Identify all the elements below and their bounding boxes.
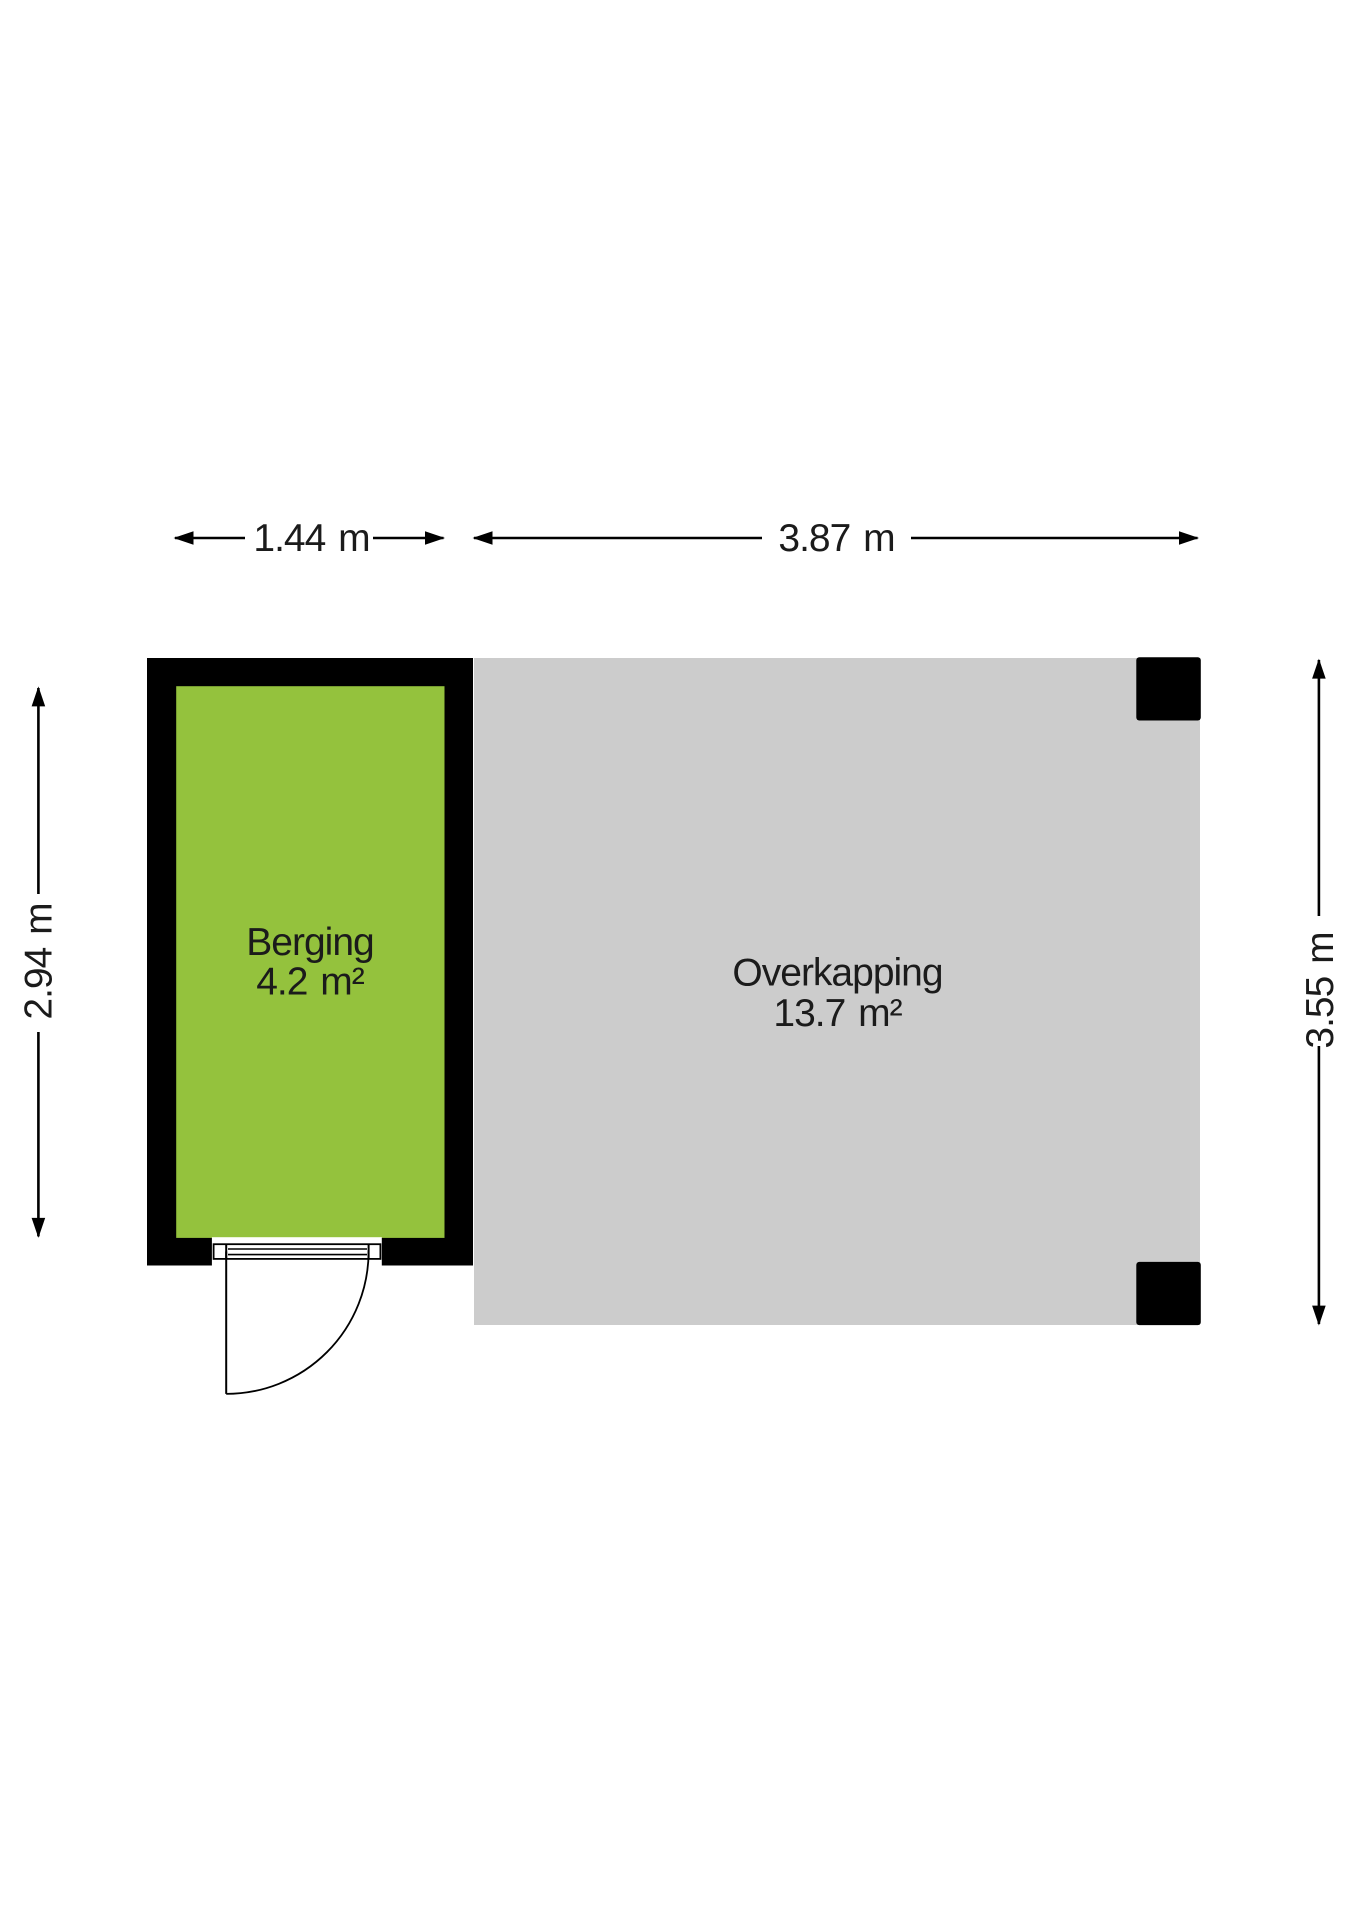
svg-text:3.55 m: 3.55 m bbox=[1299, 932, 1342, 1048]
svg-text:2.94 m: 2.94 m bbox=[18, 903, 61, 1019]
svg-text:13.7 m²: 13.7 m² bbox=[773, 992, 902, 1035]
svg-text:1.44 m: 1.44 m bbox=[253, 517, 369, 560]
svg-text:4.2 m²: 4.2 m² bbox=[256, 960, 365, 1003]
svg-text:3.87 m: 3.87 m bbox=[778, 517, 894, 560]
svg-text:Berging: Berging bbox=[246, 921, 373, 964]
svg-text:Overkapping: Overkapping bbox=[732, 952, 942, 995]
